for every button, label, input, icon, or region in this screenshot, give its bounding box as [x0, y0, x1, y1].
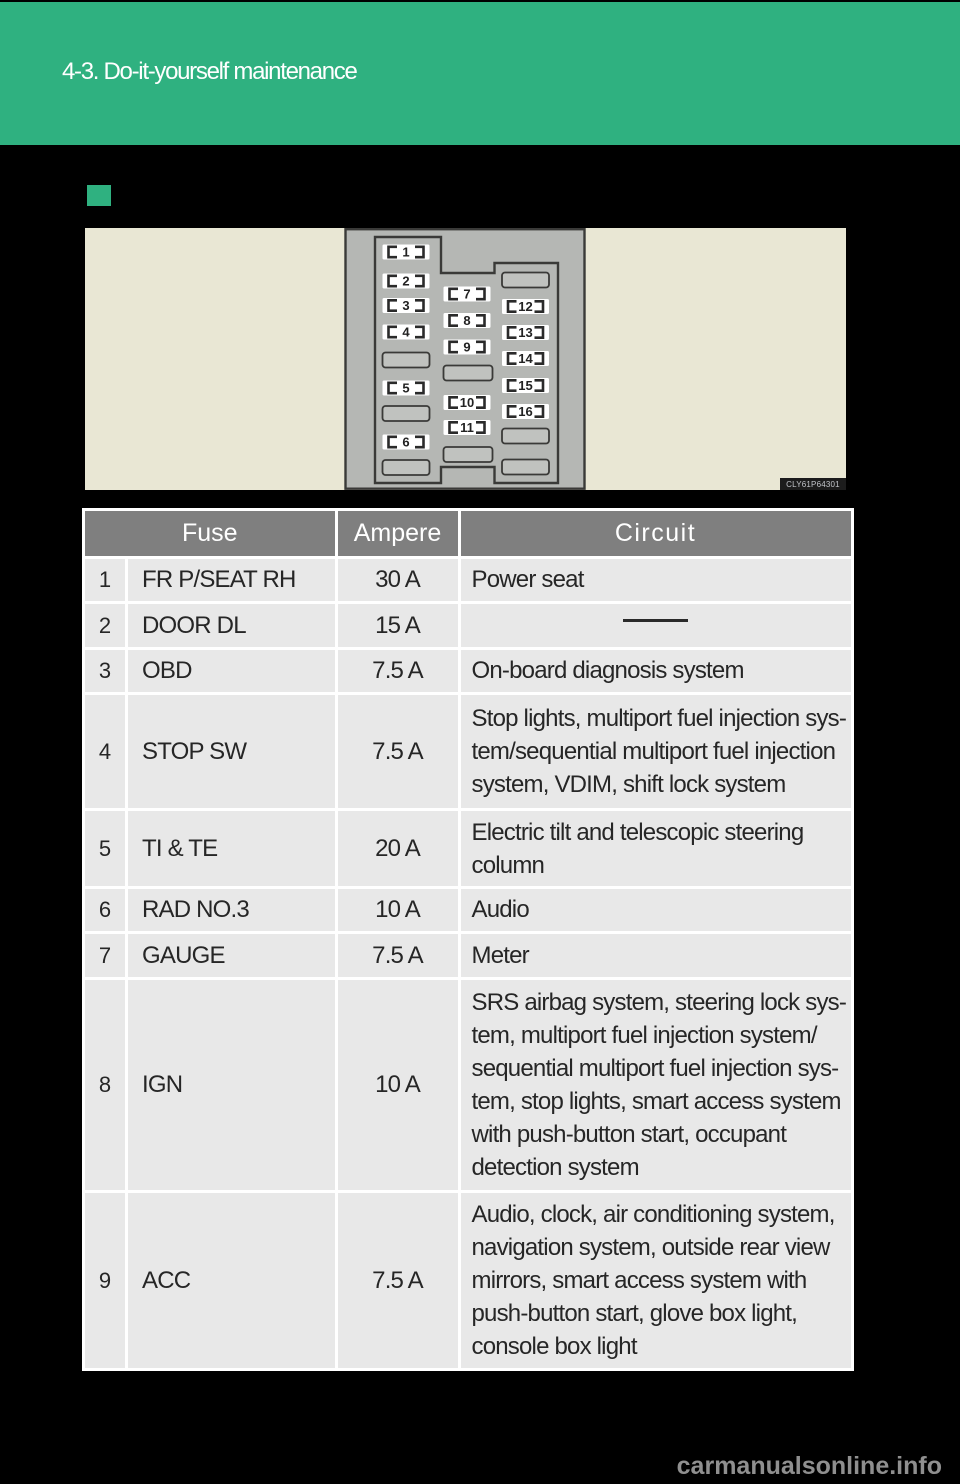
svg-text:1: 1 — [402, 245, 409, 260]
svg-text:3: 3 — [402, 298, 409, 313]
svg-text:7: 7 — [463, 287, 470, 302]
svg-text:CLY61P64301: CLY61P64301 — [786, 480, 840, 489]
svg-text:10: 10 — [460, 395, 474, 410]
svg-text:15: 15 — [518, 378, 532, 393]
svg-text:14: 14 — [518, 351, 533, 366]
svg-text:13: 13 — [518, 325, 532, 340]
svg-text:6: 6 — [402, 435, 409, 450]
svg-text:11: 11 — [460, 420, 474, 435]
svg-text:8: 8 — [463, 313, 470, 328]
svg-text:5: 5 — [402, 381, 409, 396]
svg-text:16: 16 — [518, 404, 532, 419]
svg-text:12: 12 — [518, 299, 532, 314]
svg-text:2: 2 — [402, 274, 409, 289]
svg-text:9: 9 — [463, 340, 470, 355]
svg-text:4: 4 — [402, 325, 410, 340]
